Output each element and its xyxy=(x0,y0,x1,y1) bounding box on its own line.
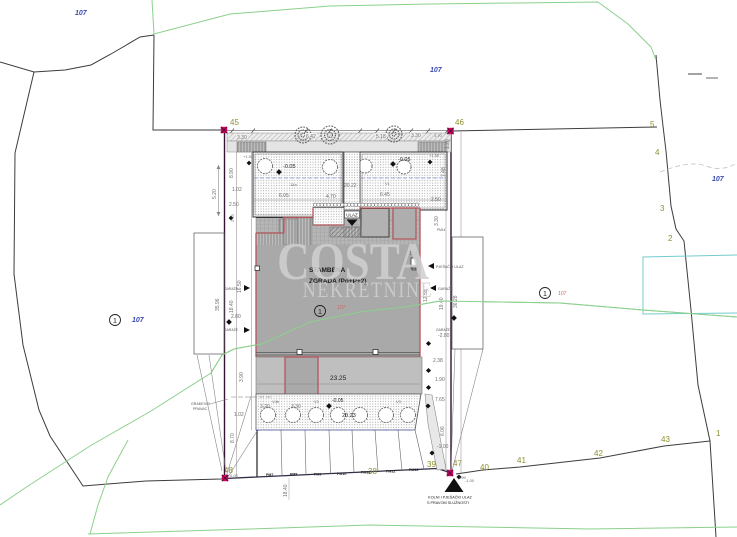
svg-text:+1.50: +1.50 xyxy=(429,153,440,158)
svg-text:107: 107 xyxy=(430,67,443,74)
svg-text:-0.05: -0.05 xyxy=(332,398,344,404)
svg-text:2.43: 2.43 xyxy=(230,213,235,222)
svg-text:20.22: 20.22 xyxy=(344,183,357,189)
svg-text:GARAŽE: GARAŽE xyxy=(436,327,451,332)
svg-text:V3: V3 xyxy=(396,399,402,404)
svg-text:2: 2 xyxy=(668,234,673,243)
svg-text:107: 107 xyxy=(132,317,145,324)
svg-text:PM8: PM8 xyxy=(290,472,297,476)
svg-text:GARAŽE: GARAŽE xyxy=(224,327,239,332)
svg-text:4.70: 4.70 xyxy=(326,194,336,200)
svg-text:43: 43 xyxy=(661,435,670,444)
svg-text:2.50: 2.50 xyxy=(431,197,441,203)
svg-text:14a: 14a xyxy=(290,182,297,187)
svg-text:ULAZ: ULAZ xyxy=(346,213,358,218)
svg-text:GRAĐEVNI: GRAĐEVNI xyxy=(191,402,210,406)
svg-text:3.30: 3.30 xyxy=(434,216,440,226)
svg-text:S PRAVOM SLUŽNOSTI: S PRAVOM SLUŽNOSTI xyxy=(427,500,469,505)
svg-text:40: 40 xyxy=(480,463,489,472)
svg-text:107: 107 xyxy=(75,10,88,17)
svg-text:20.23: 20.23 xyxy=(342,413,356,419)
svg-text:V3: V3 xyxy=(314,399,320,404)
svg-text:PM13: PM13 xyxy=(409,468,418,472)
svg-text:107: 107 xyxy=(712,176,725,183)
svg-text:1: 1 xyxy=(113,318,117,325)
svg-text:+1.50: +1.50 xyxy=(243,154,254,159)
svg-text:45: 45 xyxy=(230,118,239,127)
svg-text:-1.00: -1.00 xyxy=(437,444,449,450)
svg-text:PM9: PM9 xyxy=(314,473,321,477)
svg-text:18.40: 18.40 xyxy=(283,484,289,497)
svg-text:1.02: 1.02 xyxy=(234,412,244,418)
svg-text:6.45: 6.45 xyxy=(380,192,390,198)
svg-text:107: 107 xyxy=(558,291,567,297)
svg-text:7.65: 7.65 xyxy=(435,397,445,403)
svg-text:42: 42 xyxy=(594,449,603,458)
svg-text:2.38: 2.38 xyxy=(433,358,443,364)
svg-text:GARAŽE: GARAŽE xyxy=(438,286,453,291)
svg-text:4: 4 xyxy=(655,148,660,157)
svg-text:5: 5 xyxy=(650,120,655,129)
svg-text:6.05: 6.05 xyxy=(279,193,289,199)
svg-text:V1: V1 xyxy=(385,181,391,186)
svg-text:PJEŠAČKI ULAZ: PJEŠAČKI ULAZ xyxy=(436,264,464,269)
svg-text:PM10: PM10 xyxy=(337,472,346,476)
svg-text:PRAVAC: PRAVAC xyxy=(193,407,208,411)
svg-text:18.40: 18.40 xyxy=(229,300,235,313)
svg-text:5.20: 5.20 xyxy=(212,189,218,199)
svg-text:6.42: 6.42 xyxy=(306,134,316,140)
svg-text:6.06: 6.06 xyxy=(440,426,446,436)
svg-text:3: 3 xyxy=(660,204,665,213)
svg-text:3.90: 3.90 xyxy=(239,372,245,382)
svg-text:1.70: 1.70 xyxy=(434,133,443,138)
svg-text:3.30: 3.30 xyxy=(411,133,421,139)
svg-text:1: 1 xyxy=(318,309,322,316)
svg-text:16.50: 16.50 xyxy=(237,280,243,293)
svg-text:7.48: 7.48 xyxy=(441,167,447,177)
svg-text:0.08: 0.08 xyxy=(230,473,239,478)
svg-text:3.20: 3.20 xyxy=(260,404,270,410)
svg-text:PM11: PM11 xyxy=(361,471,370,475)
svg-text:1: 1 xyxy=(543,291,547,298)
svg-text:23.25: 23.25 xyxy=(330,375,347,382)
svg-text:3.30: 3.30 xyxy=(291,404,301,410)
svg-text:NEKRETNINE: NEKRETNINE xyxy=(303,278,434,302)
svg-text:PM7: PM7 xyxy=(266,473,273,477)
svg-text:19.40: 19.40 xyxy=(439,297,445,310)
svg-text:-1.00: -1.00 xyxy=(465,478,475,483)
svg-text:35.96: 35.96 xyxy=(215,298,221,311)
svg-text:5.18: 5.18 xyxy=(376,134,386,140)
svg-text:1.90: 1.90 xyxy=(435,377,445,383)
svg-text:107: 107 xyxy=(337,305,346,311)
svg-text:-2.80: -2.80 xyxy=(438,333,450,339)
svg-text:3.30: 3.30 xyxy=(237,135,247,141)
svg-text:PM12: PM12 xyxy=(386,470,395,474)
svg-text:2.80: 2.80 xyxy=(231,314,241,320)
svg-text:41: 41 xyxy=(517,456,526,465)
svg-text:2.50: 2.50 xyxy=(229,202,239,208)
svg-text:46: 46 xyxy=(455,118,464,127)
svg-text:1.20: 1.20 xyxy=(445,139,451,149)
svg-text:KOLNI I PJEŠAČKI ULAZ: KOLNI I PJEŠAČKI ULAZ xyxy=(428,495,472,500)
svg-text:PM14: PM14 xyxy=(437,228,446,232)
svg-text:1: 1 xyxy=(716,429,721,438)
svg-text:-0.05: -0.05 xyxy=(283,164,296,170)
svg-text:1.02: 1.02 xyxy=(232,187,242,193)
svg-text:-0.05: -0.05 xyxy=(398,157,411,163)
svg-text:8.70: 8.70 xyxy=(230,433,236,443)
svg-text:8.90: 8.90 xyxy=(229,168,235,178)
svg-text:V4b: V4b xyxy=(272,399,280,404)
